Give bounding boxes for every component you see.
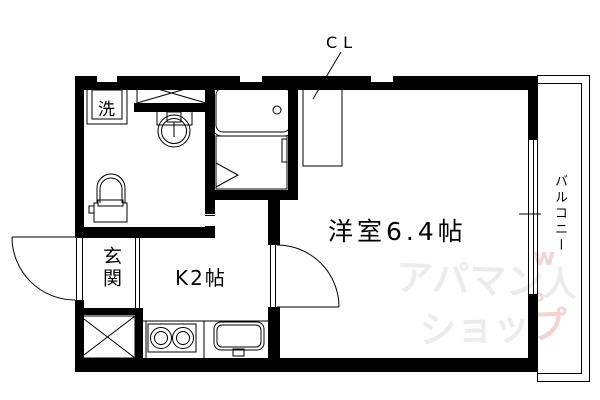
toilet-icon <box>89 174 127 222</box>
washer-label: 洗 <box>98 95 115 120</box>
entrance-door-arc <box>12 237 83 300</box>
closet-label: CL <box>326 33 358 52</box>
washroom-door-jambs <box>205 216 215 227</box>
shoebox-hatch-icon <box>80 316 135 358</box>
floor-plan: アパマン人 w ショップ ° <box>0 0 600 400</box>
closet-box <box>303 52 342 166</box>
shaft-hatch-icon <box>137 83 206 103</box>
stove-icon <box>148 324 196 352</box>
window-icon <box>519 140 541 294</box>
kitchen-label: K2帖 <box>175 262 227 291</box>
grab-bar-icon <box>282 139 287 162</box>
basin-icon <box>157 110 192 147</box>
entrance-label: 玄関 <box>98 246 125 290</box>
kitchen-sink-icon <box>214 322 264 356</box>
main-room-label: 洋室6.4帖 <box>328 212 467 248</box>
balcony-label: バルコニー <box>550 174 569 254</box>
folding-door-icon <box>216 163 238 187</box>
shower-room <box>216 136 287 189</box>
room-door-arc <box>271 245 340 307</box>
entrance-partition <box>136 238 140 308</box>
bathtub-icon <box>212 84 294 136</box>
